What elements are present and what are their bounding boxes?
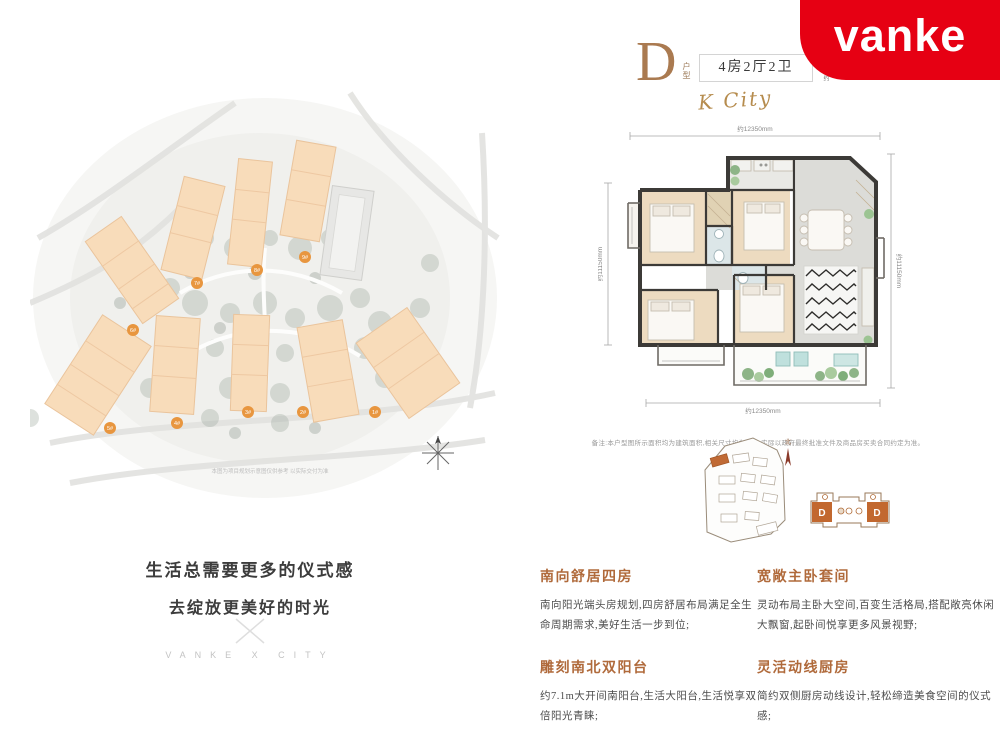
vanke-x-city-wordmark: VANKE X CITY (115, 650, 385, 660)
feature-body: 南向阳光端头房规划,四房舒居布局满足全生命周期需求,美好生活一步到位; (540, 596, 758, 637)
dim-bottom: 约12350mm (745, 406, 780, 415)
rooms-label-box: 4房2厅2卫 (699, 54, 813, 82)
vanke-logo-banner: vanke (800, 0, 1000, 80)
floor-keyplate: D D (803, 485, 895, 535)
feature-block-master-suite: 宽敞主卧套间 灵动布局主卧大空间,百变生活格局,搭配敞亮休闲大飘窗,起卧间悦享更… (757, 566, 995, 637)
slogan-line1: 生活总需要更多的仪式感 (115, 556, 385, 581)
feature-title: 雕刻南北双阳台 (540, 657, 758, 677)
masterplan-caption: 本图为项目规划示意图仅供参考 以实际交付为准 (211, 467, 329, 475)
svg-text:9#: 9# (302, 255, 309, 261)
keyplate-d-right-label: D (873, 508, 880, 519)
masterplan-illustration: 5# 4# 3# 2# 1# 6# 7# 8# 9# 本图为项目规划示意图仅供参… (30, 88, 500, 508)
slogan-block: 生活总需要更多的仪式感 去绽放更美好的时光 (115, 556, 385, 618)
svg-text:1#: 1# (372, 410, 379, 416)
keyplan-north-label: 北 (785, 438, 791, 446)
feature-title: 灵活动线厨房 (757, 657, 995, 677)
svg-text:4#: 4# (174, 421, 181, 427)
svg-text:7#: 7# (194, 281, 201, 287)
feature-block-south-rooms: 南向舒居四房 南向阳光端头房规划,四房舒居布局满足全生命周期需求,美好生活一步到… (540, 566, 758, 637)
svg-text:2#: 2# (300, 410, 307, 416)
svg-text:3#: 3# (245, 410, 252, 416)
x-ornament-icon (232, 616, 268, 646)
slogan-line2: 去绽放更美好的时光 (115, 594, 385, 618)
keyplan-compass-icon: 北 (785, 438, 791, 466)
floorplan-drawing: 约12350mm 约12350mm 约11150mm 约11150mm (598, 118, 903, 423)
feature-body: 灵动布局主卧大空间,百变生活格局,搭配敞亮休闲大飘窗,起卧间悦享更多风景视野; (757, 596, 995, 637)
dim-top: 约12350mm (737, 124, 772, 133)
site-keyplan: 北 (693, 432, 798, 552)
feature-body: 约7.1m大开间南阳台,生活大阳台,生活悦享双倍阳光青睐; (540, 687, 758, 728)
svg-text:5#: 5# (107, 426, 114, 432)
plan-letter: D (636, 34, 676, 90)
feature-body: 简约双侧厨房动线设计,轻松缔造美食空间的仪式感; (757, 687, 995, 728)
dim-right: 约11150mm (895, 254, 903, 288)
plan-type-label: 户型 (681, 62, 692, 80)
feature-title: 南向舒居四房 (540, 566, 758, 586)
svg-text:8#: 8# (254, 268, 261, 274)
dim-left: 约11150mm (598, 247, 604, 281)
svg-text:6#: 6# (130, 328, 137, 334)
page: vanke (0, 0, 1000, 750)
feature-block-double-balcony: 雕刻南北双阳台 约7.1m大开间南阳台,生活大阳台,生活悦享双倍阳光青睐; (540, 657, 758, 728)
keyplate-d-left-label: D (818, 508, 825, 519)
k-city-signature: K City (697, 85, 773, 114)
vanke-logo-text: vanke (834, 10, 967, 62)
feature-title: 宽敞主卧套间 (757, 566, 995, 586)
living-room-rug (804, 266, 858, 334)
feature-block-kitchen: 灵活动线厨房 简约双侧厨房动线设计,轻松缔造美食空间的仪式感; (757, 657, 995, 728)
